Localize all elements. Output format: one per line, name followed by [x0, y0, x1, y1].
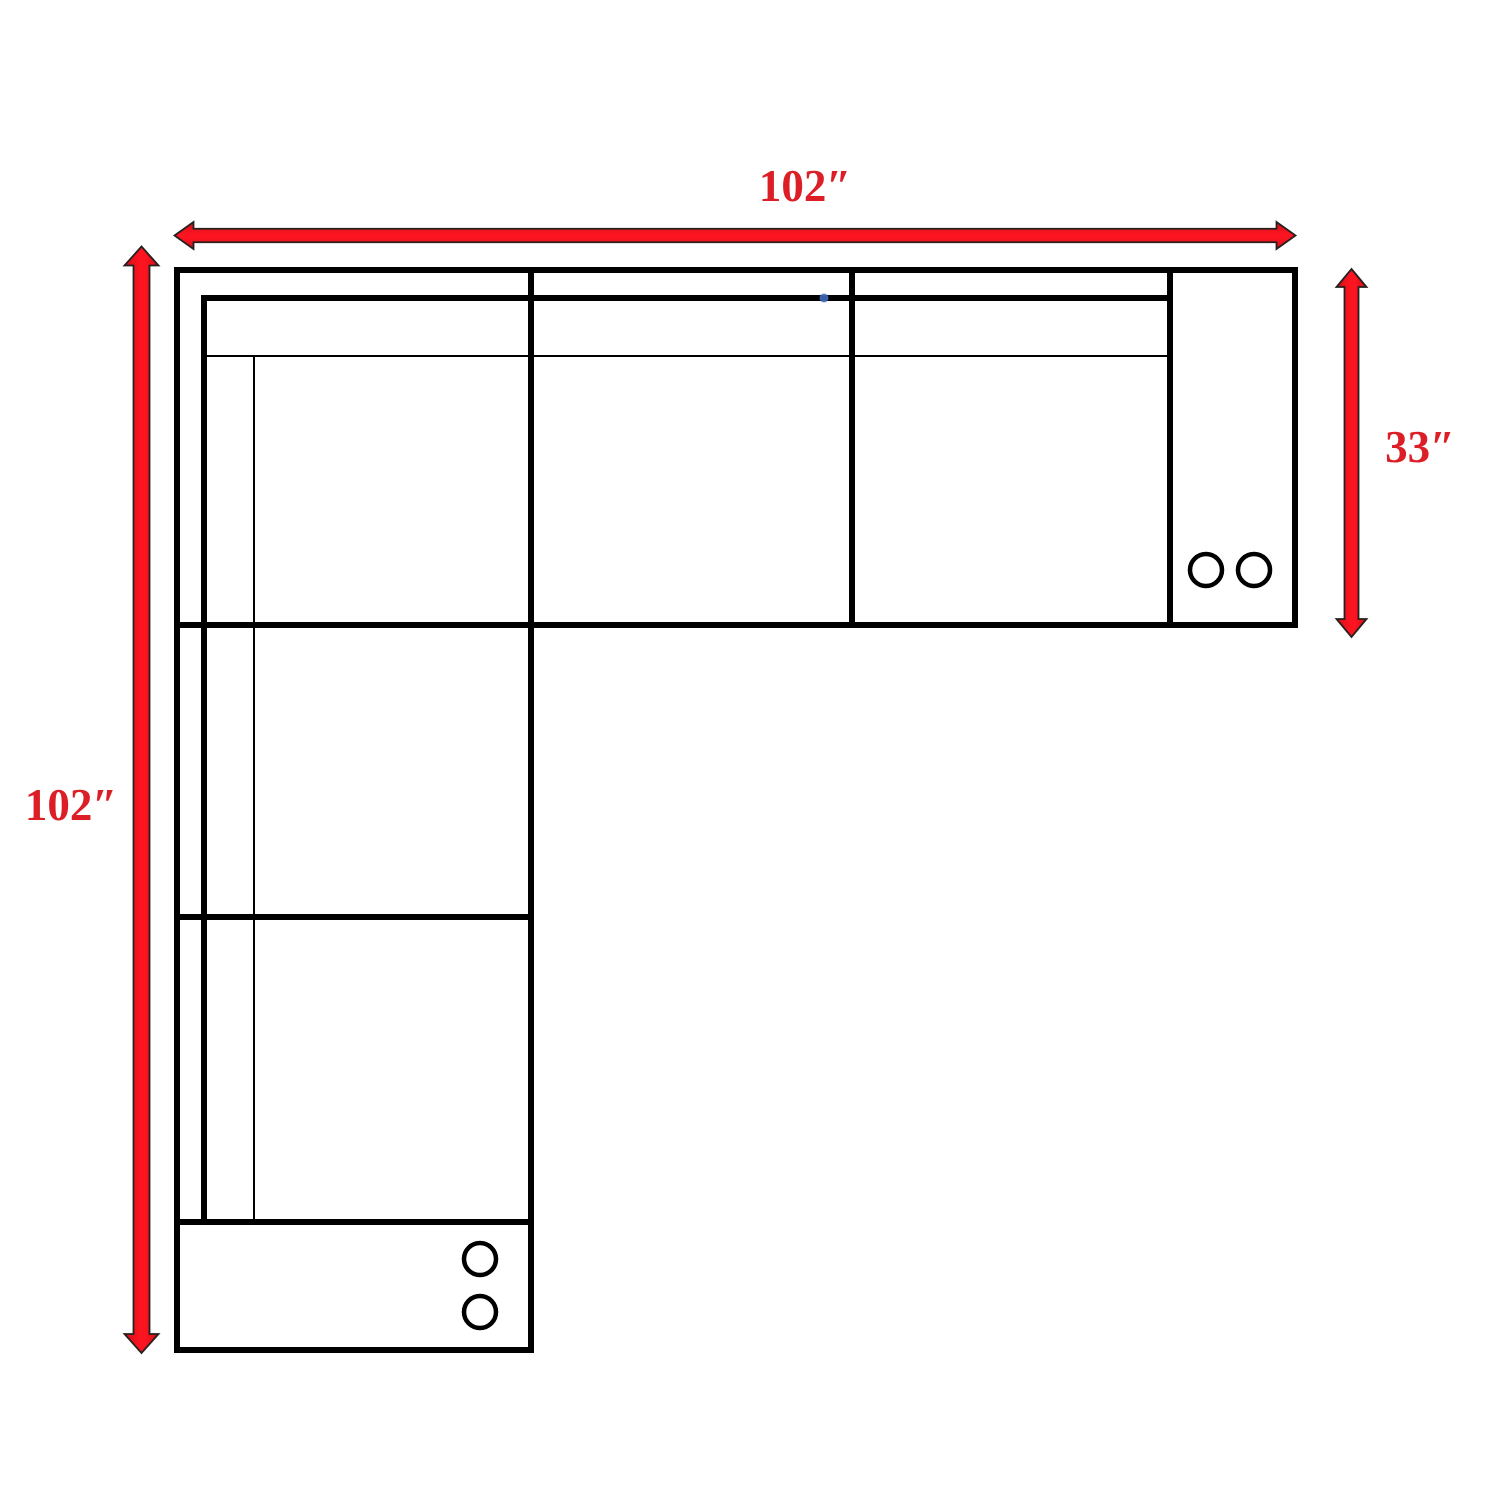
svg-text:102″: 102″ [25, 780, 117, 830]
svg-text:33″: 33″ [1385, 422, 1455, 472]
svg-text:102″: 102″ [759, 161, 851, 211]
